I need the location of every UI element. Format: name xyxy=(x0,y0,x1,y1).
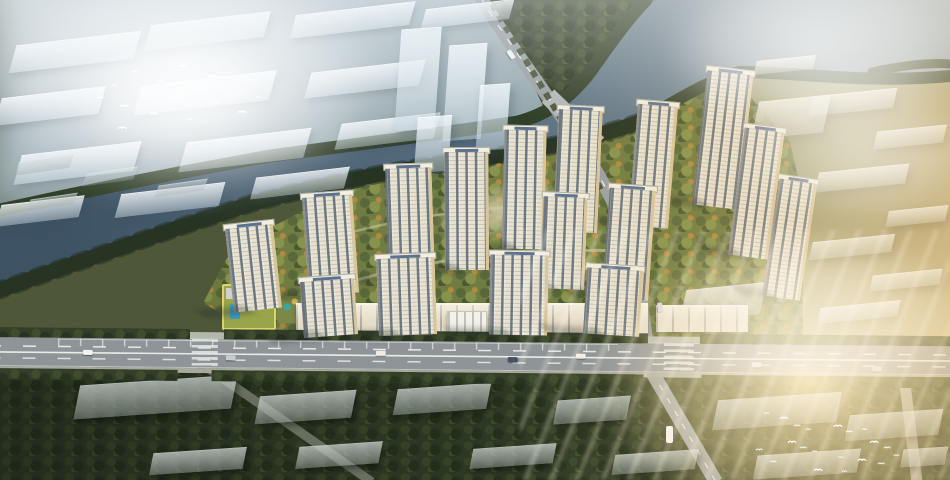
bird-icon xyxy=(806,429,811,430)
bird-icon xyxy=(878,463,884,464)
bird-icon xyxy=(132,71,138,72)
bird-icon xyxy=(196,89,201,90)
bird-icon xyxy=(98,97,104,98)
bird-icon xyxy=(756,449,762,450)
rendering-canvas xyxy=(0,0,950,480)
bird-icon xyxy=(214,103,220,104)
bird-icon xyxy=(770,461,776,462)
bird-icon xyxy=(228,93,233,94)
bird-icon xyxy=(846,431,852,432)
bird-icon xyxy=(158,81,164,82)
bird-icon xyxy=(842,471,847,472)
bird-flock-top-left xyxy=(98,65,261,129)
bird-icon xyxy=(788,441,796,443)
bird-icon xyxy=(862,429,867,430)
bird-flock-bottom-right xyxy=(756,413,899,472)
bird-icon xyxy=(884,447,890,448)
bird-icon xyxy=(780,417,788,419)
bird-icon xyxy=(118,127,126,129)
bird-icon xyxy=(140,93,145,94)
bird-icon xyxy=(120,105,128,107)
bird-icon xyxy=(812,451,817,452)
bird-icon xyxy=(894,455,899,456)
bird-icon xyxy=(256,97,261,98)
bird-icon xyxy=(834,425,842,427)
bird-icon xyxy=(150,113,158,115)
bird-icon xyxy=(112,85,117,86)
bird-icon xyxy=(814,469,822,471)
bird-flocks xyxy=(0,0,950,480)
bird-icon xyxy=(186,119,192,120)
bird-icon xyxy=(800,447,806,448)
bird-icon xyxy=(838,457,843,458)
bird-icon xyxy=(870,441,878,443)
bird-icon xyxy=(238,111,246,113)
bird-icon xyxy=(858,459,866,461)
bird-icon xyxy=(246,79,252,80)
bird-icon xyxy=(208,75,216,77)
bird-icon xyxy=(178,65,186,67)
bird-icon xyxy=(168,99,173,100)
bird-icon xyxy=(794,425,800,426)
bird-icon xyxy=(764,413,769,414)
